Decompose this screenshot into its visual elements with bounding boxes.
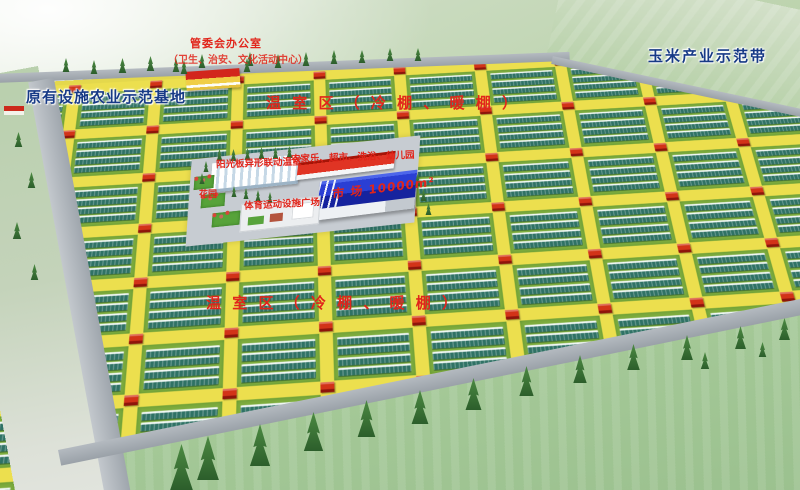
greenhouse-bar [144,376,219,389]
corner-hut [492,202,506,211]
corner-hut [320,382,334,393]
greenhouse-block [583,153,664,196]
corner-hut [736,138,750,146]
greenhouse-bar [612,287,684,299]
greenhouse-zone-bottom-label: 温 室 区 （ 冷 棚 、 暖 棚 ） [206,292,460,313]
corner-hut [643,97,656,105]
greenhouse-bar [592,181,659,192]
corner-hut [653,143,667,152]
corn-belt-label: 玉米产业示范带 [648,45,767,66]
greenhouse-block [751,143,800,185]
greenhouse-bar [666,128,731,138]
corner-hut [319,322,333,332]
greenhouse-bar [163,111,227,121]
flowers [212,213,216,217]
greenhouse-block [139,340,224,394]
corner-hut [394,67,406,75]
greenhouse-block [505,207,587,253]
corner-hut [318,265,331,275]
flowers [194,177,198,181]
corner-hut [129,334,143,345]
corner-hut [689,298,704,308]
greenhouse-bar [416,143,481,153]
corner-hut [676,243,691,253]
greenhouse-block [492,111,569,152]
plaza-court-green [248,216,264,226]
corner-hut [765,237,780,247]
greenhouse-block [780,243,800,291]
greenhouse-block [499,158,578,201]
corner-hut [597,304,612,314]
greenhouse-bar [241,369,315,382]
greenhouse-bar [690,227,759,238]
corner-hut [147,125,160,133]
greenhouse-bar [244,254,314,265]
corner-hut [231,120,243,128]
greenhouse-bar [756,146,800,156]
greenhouse-block [237,334,320,387]
greenhouse-block [656,102,736,142]
sunboard-greenhouse-label: 阳光板异形联动温室 [216,154,302,171]
greenhouse-bar [758,155,800,165]
greenhouse-block [69,135,146,177]
corner-hut [485,153,498,162]
greenhouse-bar [500,138,565,148]
corner-hut [498,254,512,264]
office-building [185,68,240,91]
greenhouse-bar [678,176,745,186]
greenhouse-bar [749,124,800,134]
corner-hut [134,277,148,287]
greenhouse-block [667,148,749,191]
greenhouse-bar [521,292,593,304]
corner-hut [314,116,326,124]
corner-hut [664,191,678,200]
small-shed [4,106,24,115]
conifer-tree [62,58,70,72]
corner-hut [505,310,520,320]
greenhouse-bar [152,260,223,272]
corner-hut [750,186,765,195]
greenhouse-bar [420,192,487,203]
corner-hut [224,328,238,339]
corner-hut [313,71,325,79]
greenhouse-bar [513,238,582,249]
garden-label: 花园 [199,187,217,200]
greenhouse-block [692,249,780,297]
greenhouse-bar [73,163,140,173]
corner-hut [412,316,426,326]
greenhouse-block [575,106,653,146]
masterplan-rendering: 管委会办公室 （卫生、治安、文化活动中心） 玉米产业示范带 原有设施农业示范基地… [0,0,800,490]
corner-hut [143,173,156,182]
corner-hut [588,248,602,258]
greenhouse-block [418,213,498,259]
greenhouse-bar [338,363,412,376]
greenhouse-bar [424,243,494,254]
plaza-court-red [270,213,283,222]
greenhouse-bar [785,247,800,258]
greenhouse-block [592,202,676,248]
office-sub-label: （卫生、治安、文化活动中心） [168,51,308,66]
office-label: 管委会办公室 [190,35,262,51]
greenhouse-block [765,191,800,236]
greenhouse-block [602,254,689,303]
greenhouse-bar [775,213,800,224]
greenhouse-block [333,328,417,381]
greenhouse-bar [79,116,144,126]
greenhouse-bar [506,186,573,197]
corner-hut [124,395,139,406]
greenhouse-bar [703,281,774,293]
greenhouse-bar [583,133,648,143]
greenhouse-bar [334,249,404,260]
corner-hut [561,101,574,109]
corner-hut [223,388,237,399]
greenhouse-block [410,116,486,157]
corner-hut [226,271,239,281]
existing-base-label: 原有设施农业示范基地 [26,86,186,107]
greenhouse-block [512,260,597,309]
corner-hut [138,223,151,232]
corner-hut [578,197,592,206]
greenhouse-bar [770,195,800,206]
greenhouse-block [679,197,764,242]
greenhouse-zone-top-label: 温 室 区 （ 冷 棚 、 暖 棚 ） [266,92,520,113]
greenhouse-bar [575,88,638,97]
corner-hut [408,260,422,270]
greenhouse-bar [602,232,671,243]
greenhouse-bar [148,316,221,328]
corner-hut [570,148,583,157]
